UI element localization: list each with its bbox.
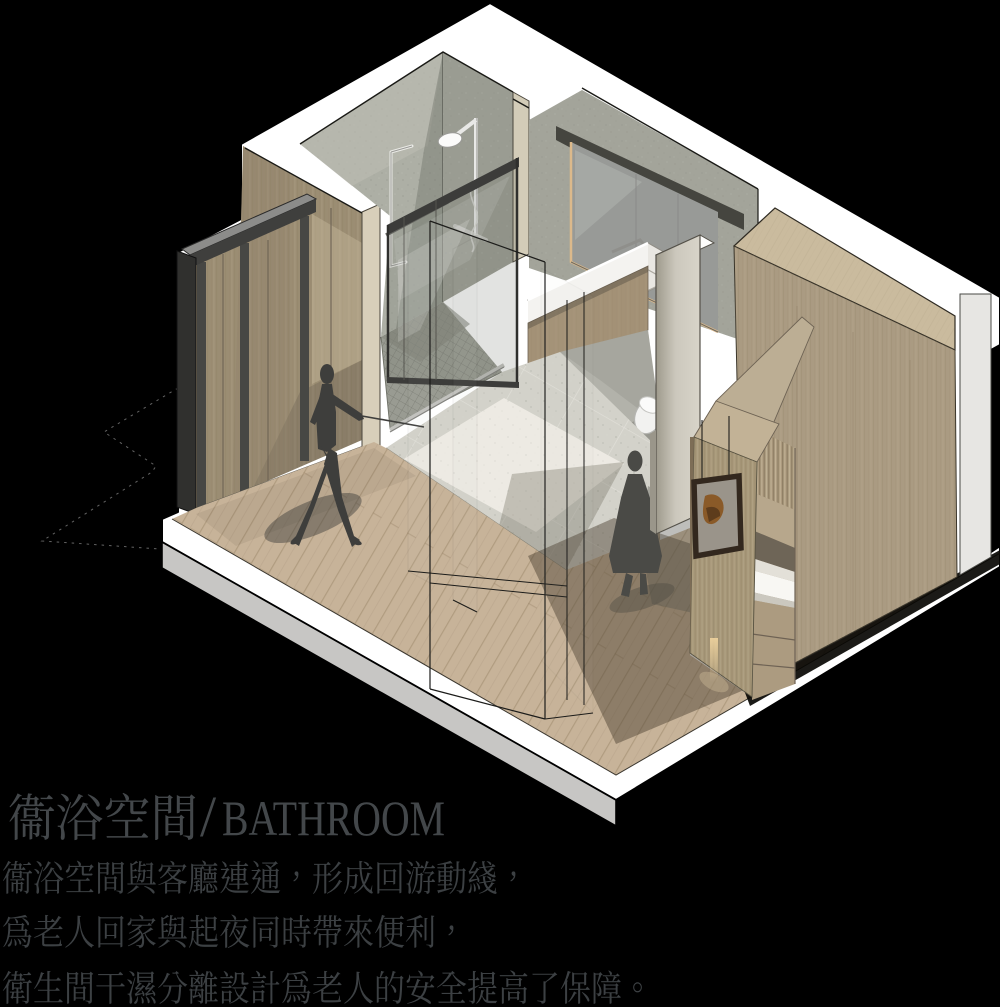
svg-text:BATHROOM: BATHROOM [222,790,445,846]
svg-text:/: / [200,784,217,849]
